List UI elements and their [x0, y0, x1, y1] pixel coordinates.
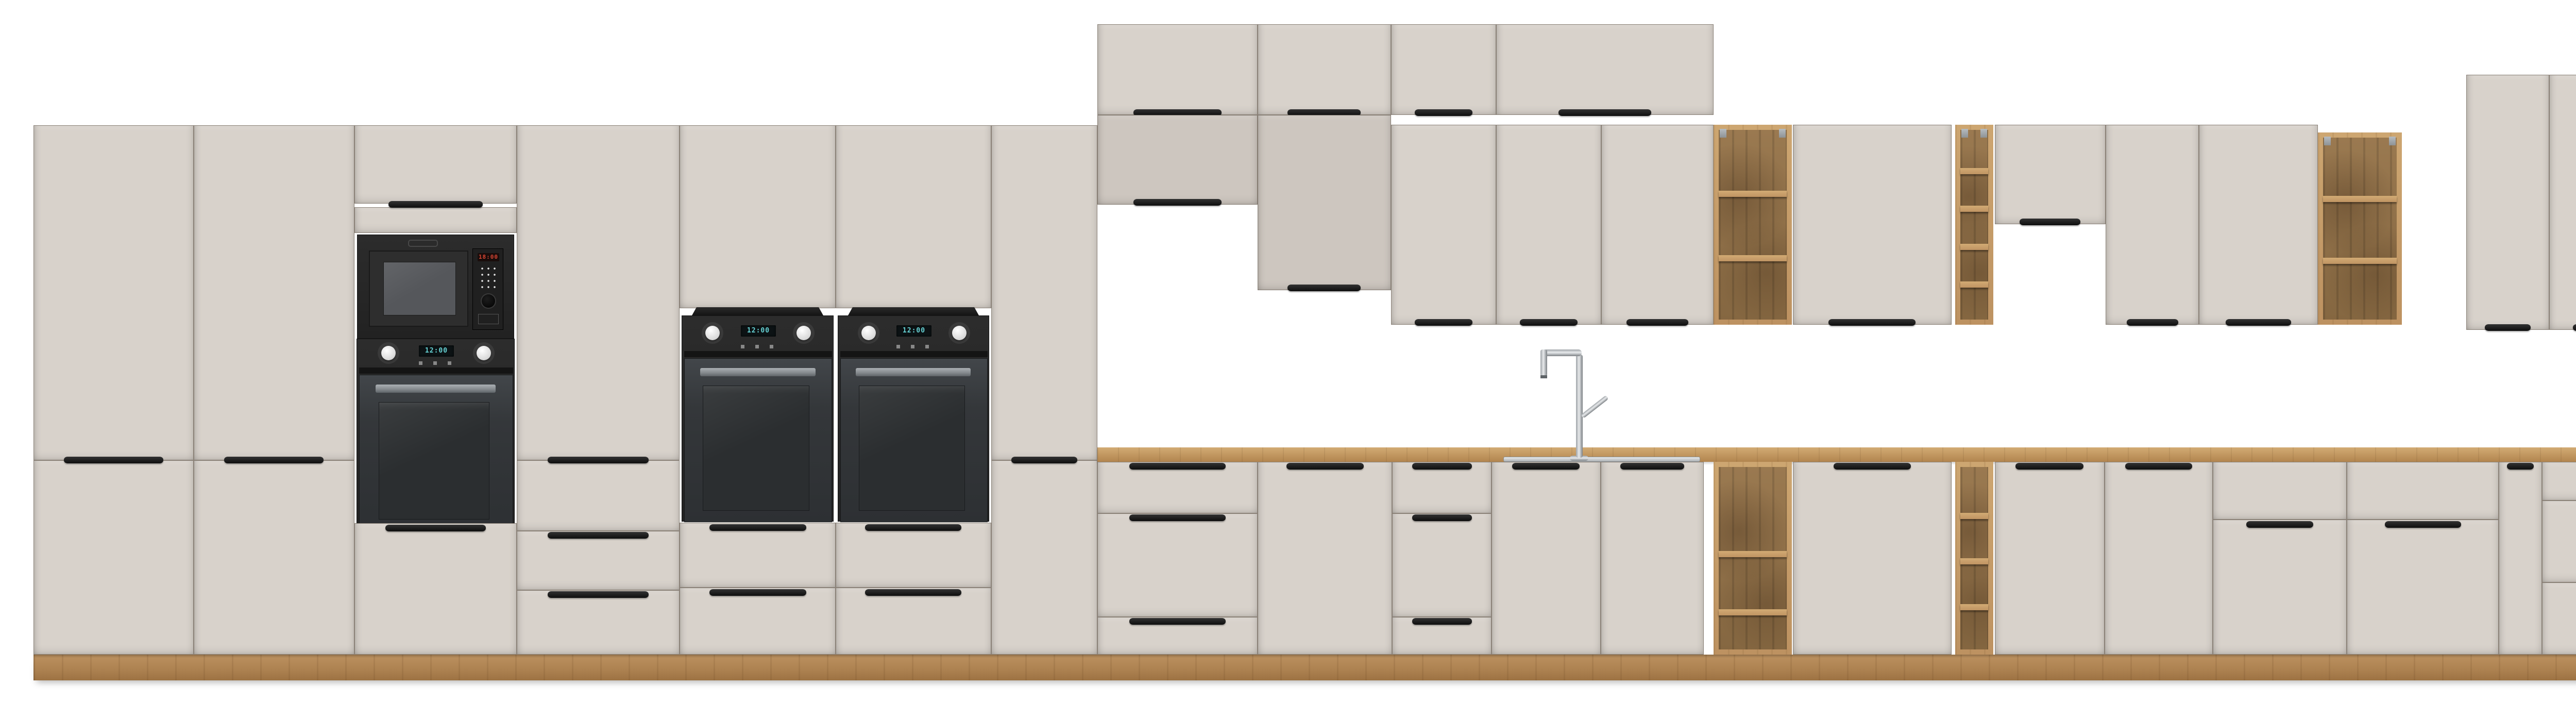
base-cabinet — [2105, 462, 2213, 655]
door-handle — [1520, 319, 1578, 326]
door-handle — [1415, 109, 1472, 116]
oven-top-handle-trim — [692, 307, 823, 315]
oven-display: 12:00 — [741, 325, 776, 337]
tall-door-lower — [33, 460, 194, 655]
shelf — [1960, 513, 1988, 519]
drawer-handle — [1129, 514, 1226, 521]
tall-door-upper — [991, 125, 1097, 460]
drawer-handle — [1412, 618, 1472, 625]
open-shelf-base-unit — [1714, 462, 1792, 655]
base-cabinet — [1995, 462, 2105, 655]
microwave-drawer-button — [478, 314, 499, 324]
door-handle — [1620, 463, 1684, 470]
tall-door-upper — [680, 125, 836, 308]
door-handle — [1558, 109, 1651, 116]
drawer-handle — [385, 525, 486, 531]
door-handle — [1512, 463, 1580, 470]
oven-touch-buttons — [896, 345, 931, 348]
drawer-handle — [865, 524, 961, 531]
wall-cabinet-top-row — [1391, 24, 1496, 115]
tall-door-lower — [991, 460, 1097, 655]
drawer-front — [1392, 462, 1492, 513]
drawer-front — [1097, 513, 1258, 617]
shelf — [1960, 604, 1988, 610]
door-handle — [2127, 319, 2178, 326]
door-handle — [1011, 457, 1077, 463]
drawer-front — [2542, 500, 2576, 582]
microwave-window — [383, 262, 456, 315]
faucet-spout — [1540, 349, 1547, 376]
wall-cabinet-top-row-wide — [1496, 24, 1714, 115]
tall-door-upper — [517, 125, 680, 460]
door-front — [2213, 520, 2347, 655]
drawer-handle — [1412, 463, 1472, 470]
drawer-handle — [1412, 514, 1472, 521]
mounting-bracket — [1961, 129, 1968, 138]
door-handle — [2507, 463, 2534, 470]
wall-cabinet — [1258, 115, 1391, 290]
oven-recess — [359, 368, 513, 374]
oven-door — [840, 358, 988, 522]
door-handle — [224, 457, 324, 463]
shelf — [2323, 258, 2397, 264]
faucet-aerator — [1540, 375, 1547, 378]
door-handle — [1828, 319, 1916, 326]
drawer-front — [1097, 462, 1258, 513]
base-cabinet — [1258, 462, 1392, 655]
oven-display: 12:00 — [419, 345, 454, 357]
oven-knob — [796, 326, 811, 340]
door-handle — [64, 457, 163, 463]
drawer-front — [680, 588, 836, 655]
microwave-vent — [408, 240, 438, 247]
tall-door-upper — [33, 125, 194, 460]
wall-cabinet-top-row — [1258, 24, 1391, 115]
oven-knob — [952, 326, 967, 340]
open-shelf-narrow-wall-unit — [1955, 125, 1993, 325]
wall-cabinet — [2106, 125, 2199, 325]
wall-cabinet — [1793, 125, 1952, 325]
shelf-back-panel — [2323, 138, 2397, 320]
drawer-handle — [1129, 463, 1226, 470]
drawer-front — [2542, 462, 2576, 500]
mounting-bracket — [1779, 129, 1786, 138]
open-shelf-narrow-base-unit — [1955, 462, 1993, 655]
sink-base-door — [1601, 462, 1704, 655]
door-handle — [1415, 319, 1472, 326]
wall-cabinet-tall — [2466, 75, 2549, 330]
oven-door — [684, 358, 832, 522]
oven-knob — [381, 346, 396, 360]
door-handle — [2485, 324, 2531, 331]
mounting-bracket — [1980, 129, 1987, 138]
worktop — [1097, 447, 2576, 462]
wall-cabinet — [1496, 125, 1601, 325]
shelf — [1960, 168, 1988, 174]
oven-touch-buttons — [419, 361, 454, 365]
oven-top-handle-trim — [848, 307, 979, 315]
shelf-back-panel — [1719, 130, 1787, 320]
drawer-front — [517, 590, 680, 655]
plinth — [33, 655, 2576, 680]
drawer-front — [2542, 582, 2576, 655]
open-shelf-wall-unit — [1714, 125, 1792, 325]
wall-cabinet-tall — [2549, 75, 2576, 330]
tall-door-lower — [194, 460, 354, 655]
drawer-handle — [548, 591, 649, 598]
door-handle — [1286, 463, 1364, 470]
shelf — [2323, 196, 2397, 202]
base-cabinet-wide — [1793, 462, 1952, 655]
shelf-back-panel — [1719, 467, 1787, 649]
wall-cabinet — [1097, 115, 1258, 205]
sink-base-door — [1492, 462, 1601, 655]
faucet-lever — [1581, 395, 1608, 419]
door-handle — [2020, 219, 2080, 225]
door-front — [2347, 520, 2499, 655]
oven-door-window — [379, 402, 489, 520]
mounting-bracket — [2324, 137, 2331, 145]
drawer-front — [836, 588, 991, 655]
drawer-handle — [709, 524, 806, 531]
tall-door-upper — [354, 125, 517, 204]
wall-cabinet — [1601, 125, 1714, 325]
drawer-front — [354, 523, 517, 655]
oven-touch-buttons — [741, 345, 776, 348]
mounting-bracket — [1720, 129, 1726, 138]
drawer-handle — [1129, 618, 1226, 625]
built-in-oven: 12:00 — [682, 315, 834, 522]
door-handle — [2385, 521, 2461, 528]
shelf-back-panel — [1960, 130, 1988, 320]
wall-cabinet-top-row — [1097, 24, 1258, 115]
shelf — [1960, 206, 1988, 212]
kitchen-scene: 18:0012:0012:0012:0012:00 — [0, 0, 2576, 701]
door-handle — [2573, 324, 2576, 331]
shelf — [1719, 609, 1787, 615]
wall-cabinet-short — [1995, 125, 2106, 224]
oven-display: 12:00 — [896, 325, 931, 337]
drawer-front — [2213, 462, 2347, 520]
door-handle — [1626, 319, 1688, 326]
oven-door-handle — [700, 368, 816, 376]
small-drawer-front — [354, 207, 517, 233]
sink-rim — [1503, 457, 1700, 462]
built-in-microwave: 18:00 — [357, 235, 514, 339]
door-handle — [2246, 521, 2313, 528]
built-in-oven: 12:00 — [357, 339, 515, 530]
microwave-door — [369, 251, 468, 327]
shelf — [1960, 244, 1988, 250]
faucet-riser — [1576, 355, 1583, 458]
drawer-front — [517, 531, 680, 590]
microwave-control-panel: 18:00 — [472, 248, 503, 330]
shelf — [1719, 255, 1787, 261]
door-handle — [2125, 463, 2192, 470]
door-handle — [1133, 199, 1222, 206]
drawer-front — [517, 460, 680, 531]
oven-door-handle — [856, 368, 971, 376]
door-handle — [1287, 285, 1361, 291]
door-handle — [548, 457, 649, 463]
door-handle — [1834, 463, 1911, 470]
drawer-handle — [709, 589, 806, 596]
drawer-front — [1392, 513, 1492, 617]
oven-knob — [705, 326, 720, 340]
oven-recess — [840, 351, 988, 357]
door-handle — [2015, 463, 2083, 470]
oven-recess — [684, 351, 832, 357]
tall-door-upper — [194, 125, 354, 460]
microwave-dial — [482, 294, 495, 308]
drawer-front — [2347, 462, 2499, 520]
drawer-handle — [388, 201, 483, 208]
drawer-handle — [865, 589, 961, 596]
oven-knob — [861, 326, 876, 340]
door-handle — [2226, 319, 2291, 326]
drawer-front — [836, 523, 991, 588]
oven-door-window — [859, 386, 965, 511]
oven-knob — [477, 346, 491, 360]
built-in-oven: 12:00 — [838, 315, 989, 522]
microwave-display: 18:00 — [478, 253, 499, 261]
open-shelf-wall-unit — [2318, 132, 2402, 325]
drawer-handle — [548, 532, 649, 539]
microwave-keypad — [479, 265, 499, 289]
oven-door — [359, 375, 513, 531]
base-filler-door — [2499, 462, 2542, 655]
drawer-front — [680, 523, 836, 588]
tall-door-upper — [836, 125, 991, 308]
oven-door-handle — [376, 385, 496, 393]
mounting-bracket — [2389, 137, 2396, 145]
shelf — [1960, 281, 1988, 288]
shelf — [1960, 558, 1988, 564]
oven-door-window — [703, 386, 809, 511]
shelf — [1719, 551, 1787, 557]
wall-cabinet — [2199, 125, 2318, 325]
shelf — [1719, 191, 1787, 197]
wall-cabinet — [1391, 125, 1496, 325]
